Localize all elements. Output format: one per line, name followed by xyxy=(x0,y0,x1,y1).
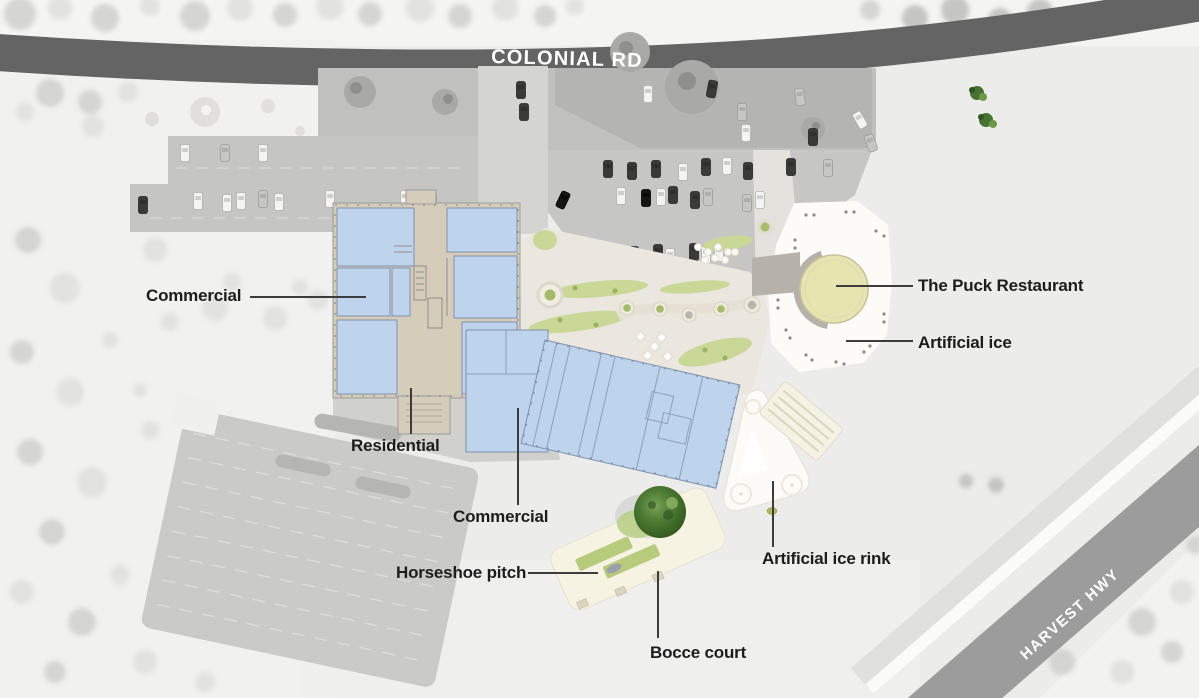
leader-artificial-ice xyxy=(846,340,913,342)
ice-rink xyxy=(724,380,844,514)
small-green-trees xyxy=(969,86,997,128)
leader-commercial-upper xyxy=(250,296,366,298)
leader-artificial-ice-rink xyxy=(772,481,774,547)
residential-entrance xyxy=(398,396,450,434)
leader-horseshoe-pitch xyxy=(528,572,598,574)
annotation-puck-restaurant: The Puck Restaurant xyxy=(918,277,1083,295)
annotation-artificial-ice-rink: Artificial ice rink xyxy=(762,550,890,568)
annotation-commercial-upper: Commercial xyxy=(146,287,241,305)
leader-puck-restaurant xyxy=(836,285,913,287)
colonial-rd-label: COLONIAL RD xyxy=(482,46,653,73)
annotation-horseshoe-pitch: Horseshoe pitch xyxy=(396,564,526,582)
leader-commercial-lower xyxy=(517,408,519,505)
annotation-artificial-ice: Artificial ice xyxy=(918,334,1012,352)
site-plan-graphic xyxy=(0,0,1199,698)
restaurant-roof-circle xyxy=(800,255,868,323)
big-tree xyxy=(634,486,686,538)
site-plan-canvas: COLONIAL RD HARVEST HWY Commercial Resid… xyxy=(0,0,1199,698)
leader-residential xyxy=(410,388,412,434)
annotation-commercial-lower: Commercial xyxy=(453,508,548,526)
annotation-residential: Residential xyxy=(351,437,440,455)
restaurant-walkway xyxy=(752,252,800,296)
leader-bocce-court xyxy=(657,571,659,638)
annotation-bocce-court: Bocce court xyxy=(650,644,746,662)
